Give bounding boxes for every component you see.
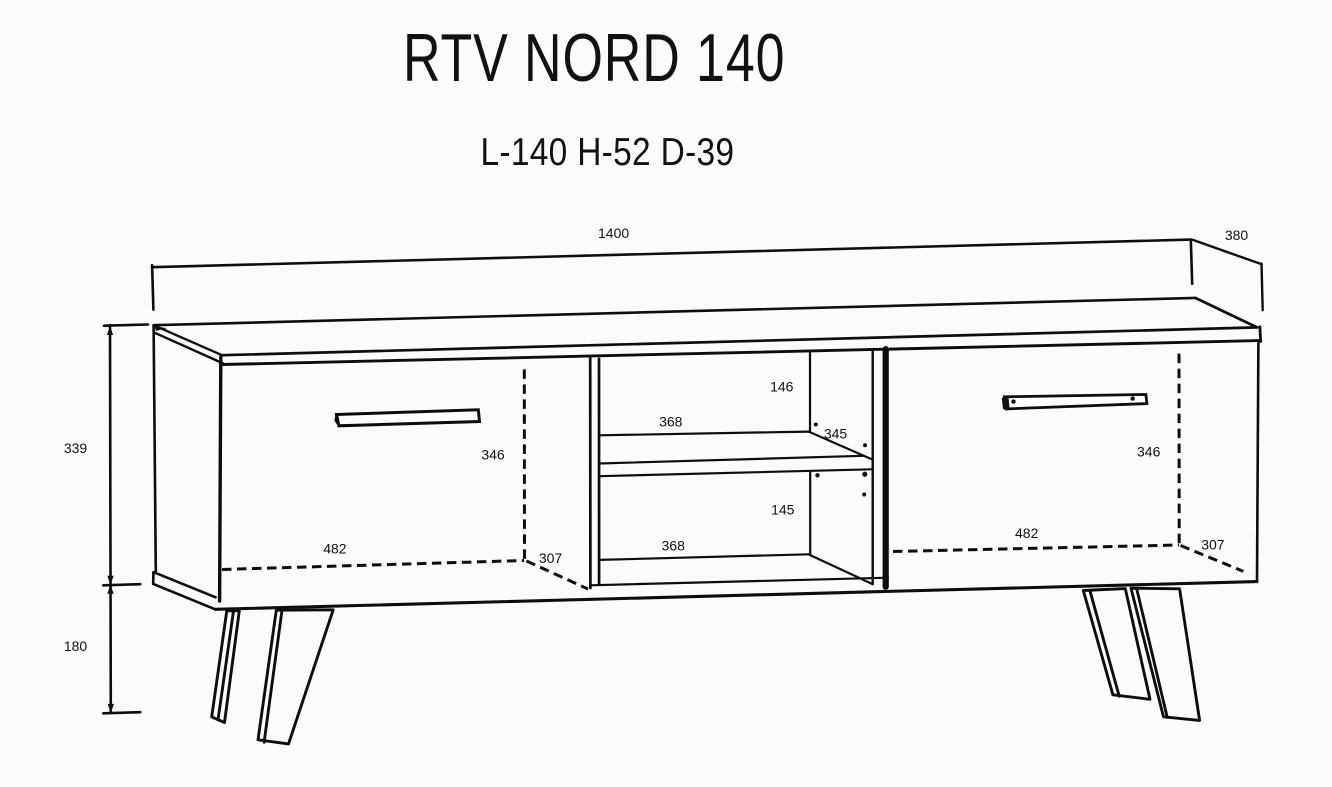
svg-text:145: 145 (771, 502, 795, 518)
svg-text:L-140 H-52 D-39: L-140 H-52 D-39 (480, 130, 734, 174)
svg-text:146: 146 (770, 378, 794, 394)
svg-text:339: 339 (64, 440, 88, 456)
svg-text:368: 368 (659, 413, 683, 429)
svg-text:1400: 1400 (598, 225, 629, 241)
svg-text:380: 380 (1225, 227, 1249, 243)
svg-text:368: 368 (662, 538, 686, 554)
svg-text:346: 346 (1137, 444, 1161, 460)
svg-text:RTV NORD 140: RTV NORD 140 (403, 19, 786, 95)
svg-text:482: 482 (323, 541, 347, 557)
svg-text:307: 307 (1201, 537, 1225, 553)
svg-text:482: 482 (1015, 525, 1039, 541)
svg-text:180: 180 (64, 638, 88, 654)
svg-text:346: 346 (481, 447, 505, 463)
svg-text:307: 307 (539, 550, 563, 566)
svg-text:345: 345 (824, 425, 848, 441)
